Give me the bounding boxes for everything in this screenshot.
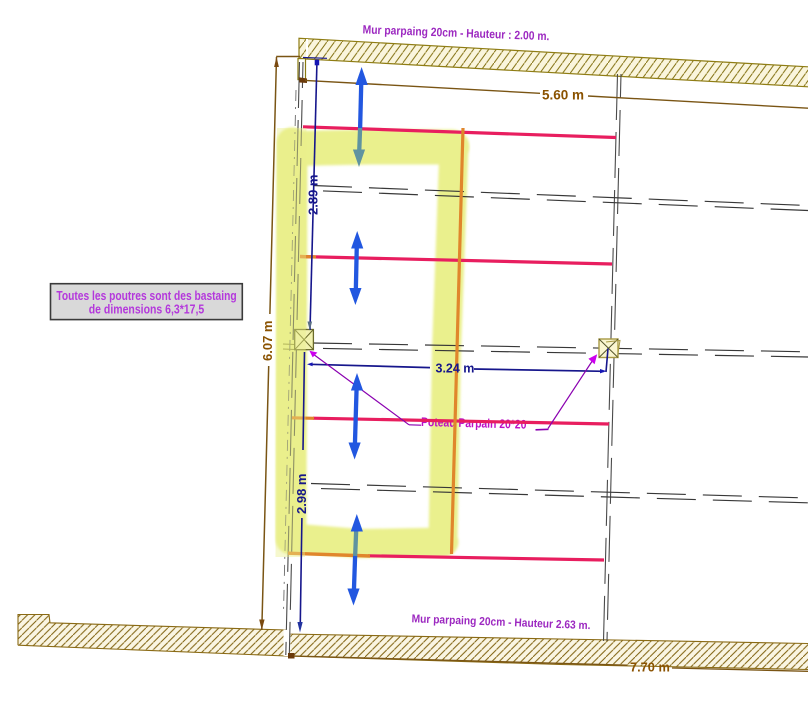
svg-text:5.60 m: 5.60 m (542, 88, 584, 103)
svg-text:6.07 m: 6.07 m (260, 321, 275, 361)
svg-text:Poteau Parpain 20*20: Poteau Parpain 20*20 (421, 416, 527, 432)
svg-text:3.24 m: 3.24 m (436, 362, 475, 376)
svg-text:2.98 m: 2.98 m (294, 474, 309, 514)
svg-text:7.70 m: 7.70 m (630, 660, 670, 675)
svg-text:Toutes les poutres sont des ba: Toutes les poutres sont des bastaing (56, 290, 236, 303)
svg-text:de dimensions 6,3*17,5: de dimensions 6,3*17,5 (89, 304, 205, 317)
svg-text:2.89 m: 2.89 m (306, 175, 321, 215)
